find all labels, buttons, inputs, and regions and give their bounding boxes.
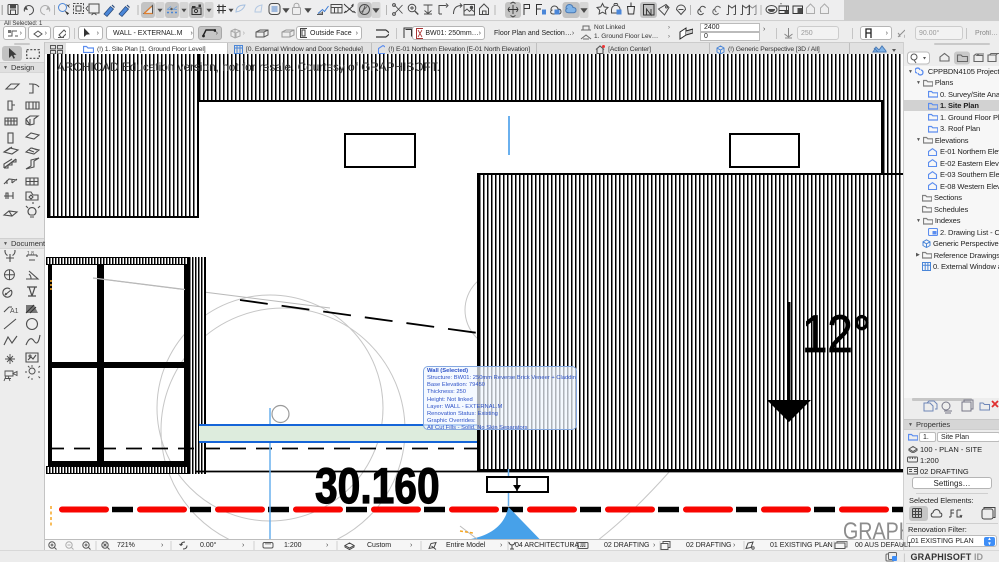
svg-text:α: α <box>904 34 905 39</box>
svg-text:A1: A1 <box>10 308 19 315</box>
svg-text:1.8: 1.8 <box>27 251 34 257</box>
